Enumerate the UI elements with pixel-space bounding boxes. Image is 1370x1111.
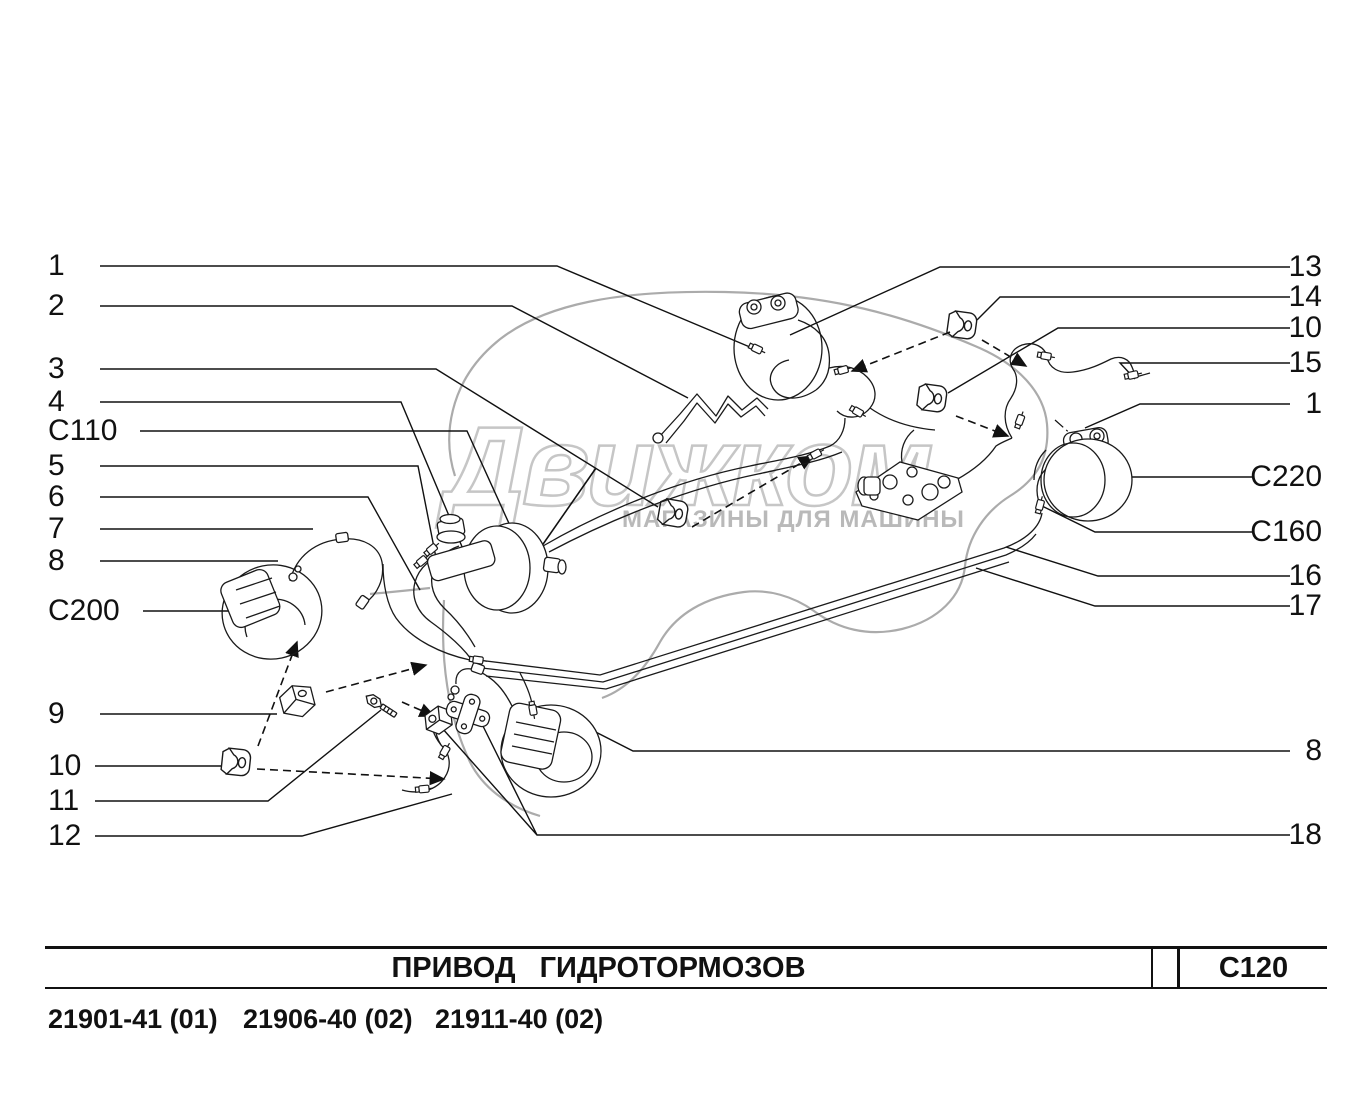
rear-right-drum-brake — [1034, 426, 1132, 521]
model-variant-2: 21906-40 (02) — [243, 1004, 413, 1035]
callout-15: 15 — [1289, 348, 1322, 378]
callout-c200: C200 — [48, 596, 120, 626]
model-variant-3: 21911-40 (02) — [435, 1004, 603, 1035]
pressure-regulator — [856, 462, 962, 520]
callout-14: 14 — [1289, 282, 1322, 312]
callout-4: 4 — [48, 387, 65, 417]
callout-c220: C220 — [1250, 462, 1322, 492]
callout-1-left: 1 — [48, 251, 65, 281]
section-code: C120 — [1180, 952, 1327, 985]
callout-6: 6 — [48, 482, 65, 512]
callout-11: 11 — [48, 786, 79, 816]
callout-5: 5 — [48, 451, 65, 481]
callout-18: 18 — [1289, 820, 1322, 850]
callout-16: 16 — [1289, 561, 1322, 591]
section-title: ПРИВОД ГИДРОТОРМОЗОВ — [45, 952, 1152, 985]
brake-system-diagram — [0, 0, 1370, 1111]
master-cylinder-booster — [426, 515, 566, 614]
hose-bracket-9 — [278, 683, 316, 719]
callout-12: 12 — [48, 821, 81, 851]
front-left-brake — [213, 532, 382, 668]
pipe-clip-14 — [946, 310, 977, 340]
pipe-bracket-2 — [653, 394, 768, 443]
pipe-clip-10-left — [221, 748, 252, 777]
mounting-bolt-11 — [364, 692, 399, 719]
callout-c110: C110 — [48, 416, 118, 446]
callout-2: 2 — [48, 291, 65, 321]
table-rule-bottom — [45, 987, 1327, 989]
callout-10-left: 10 — [48, 751, 81, 781]
model-variant-1: 21901-41 (01) — [48, 1004, 218, 1035]
rear-left-brake-assembly — [734, 291, 875, 417]
callout-13: 13 — [1289, 252, 1322, 282]
callout-8-right: 8 — [1305, 736, 1322, 766]
leader-lines — [95, 266, 1290, 836]
catalog-page: Движком МАГАЗИНЫ ДЛЯ МАШИНЫ — [0, 0, 1370, 1111]
pointer-arrows — [257, 332, 1100, 779]
callout-17: 17 — [1289, 591, 1322, 621]
callout-c160: C160 — [1250, 517, 1322, 547]
callout-9: 9 — [48, 699, 65, 729]
pipe-clip-10-right — [916, 383, 947, 413]
junction-brackets-18 — [424, 688, 495, 740]
callout-3: 3 — [48, 354, 65, 384]
table-rule-top — [45, 946, 1327, 949]
callout-10-right: 10 — [1289, 313, 1322, 343]
callout-1-right: 1 — [1305, 389, 1322, 419]
callout-7: 7 — [48, 514, 65, 544]
callout-8-left: 8 — [48, 546, 65, 576]
